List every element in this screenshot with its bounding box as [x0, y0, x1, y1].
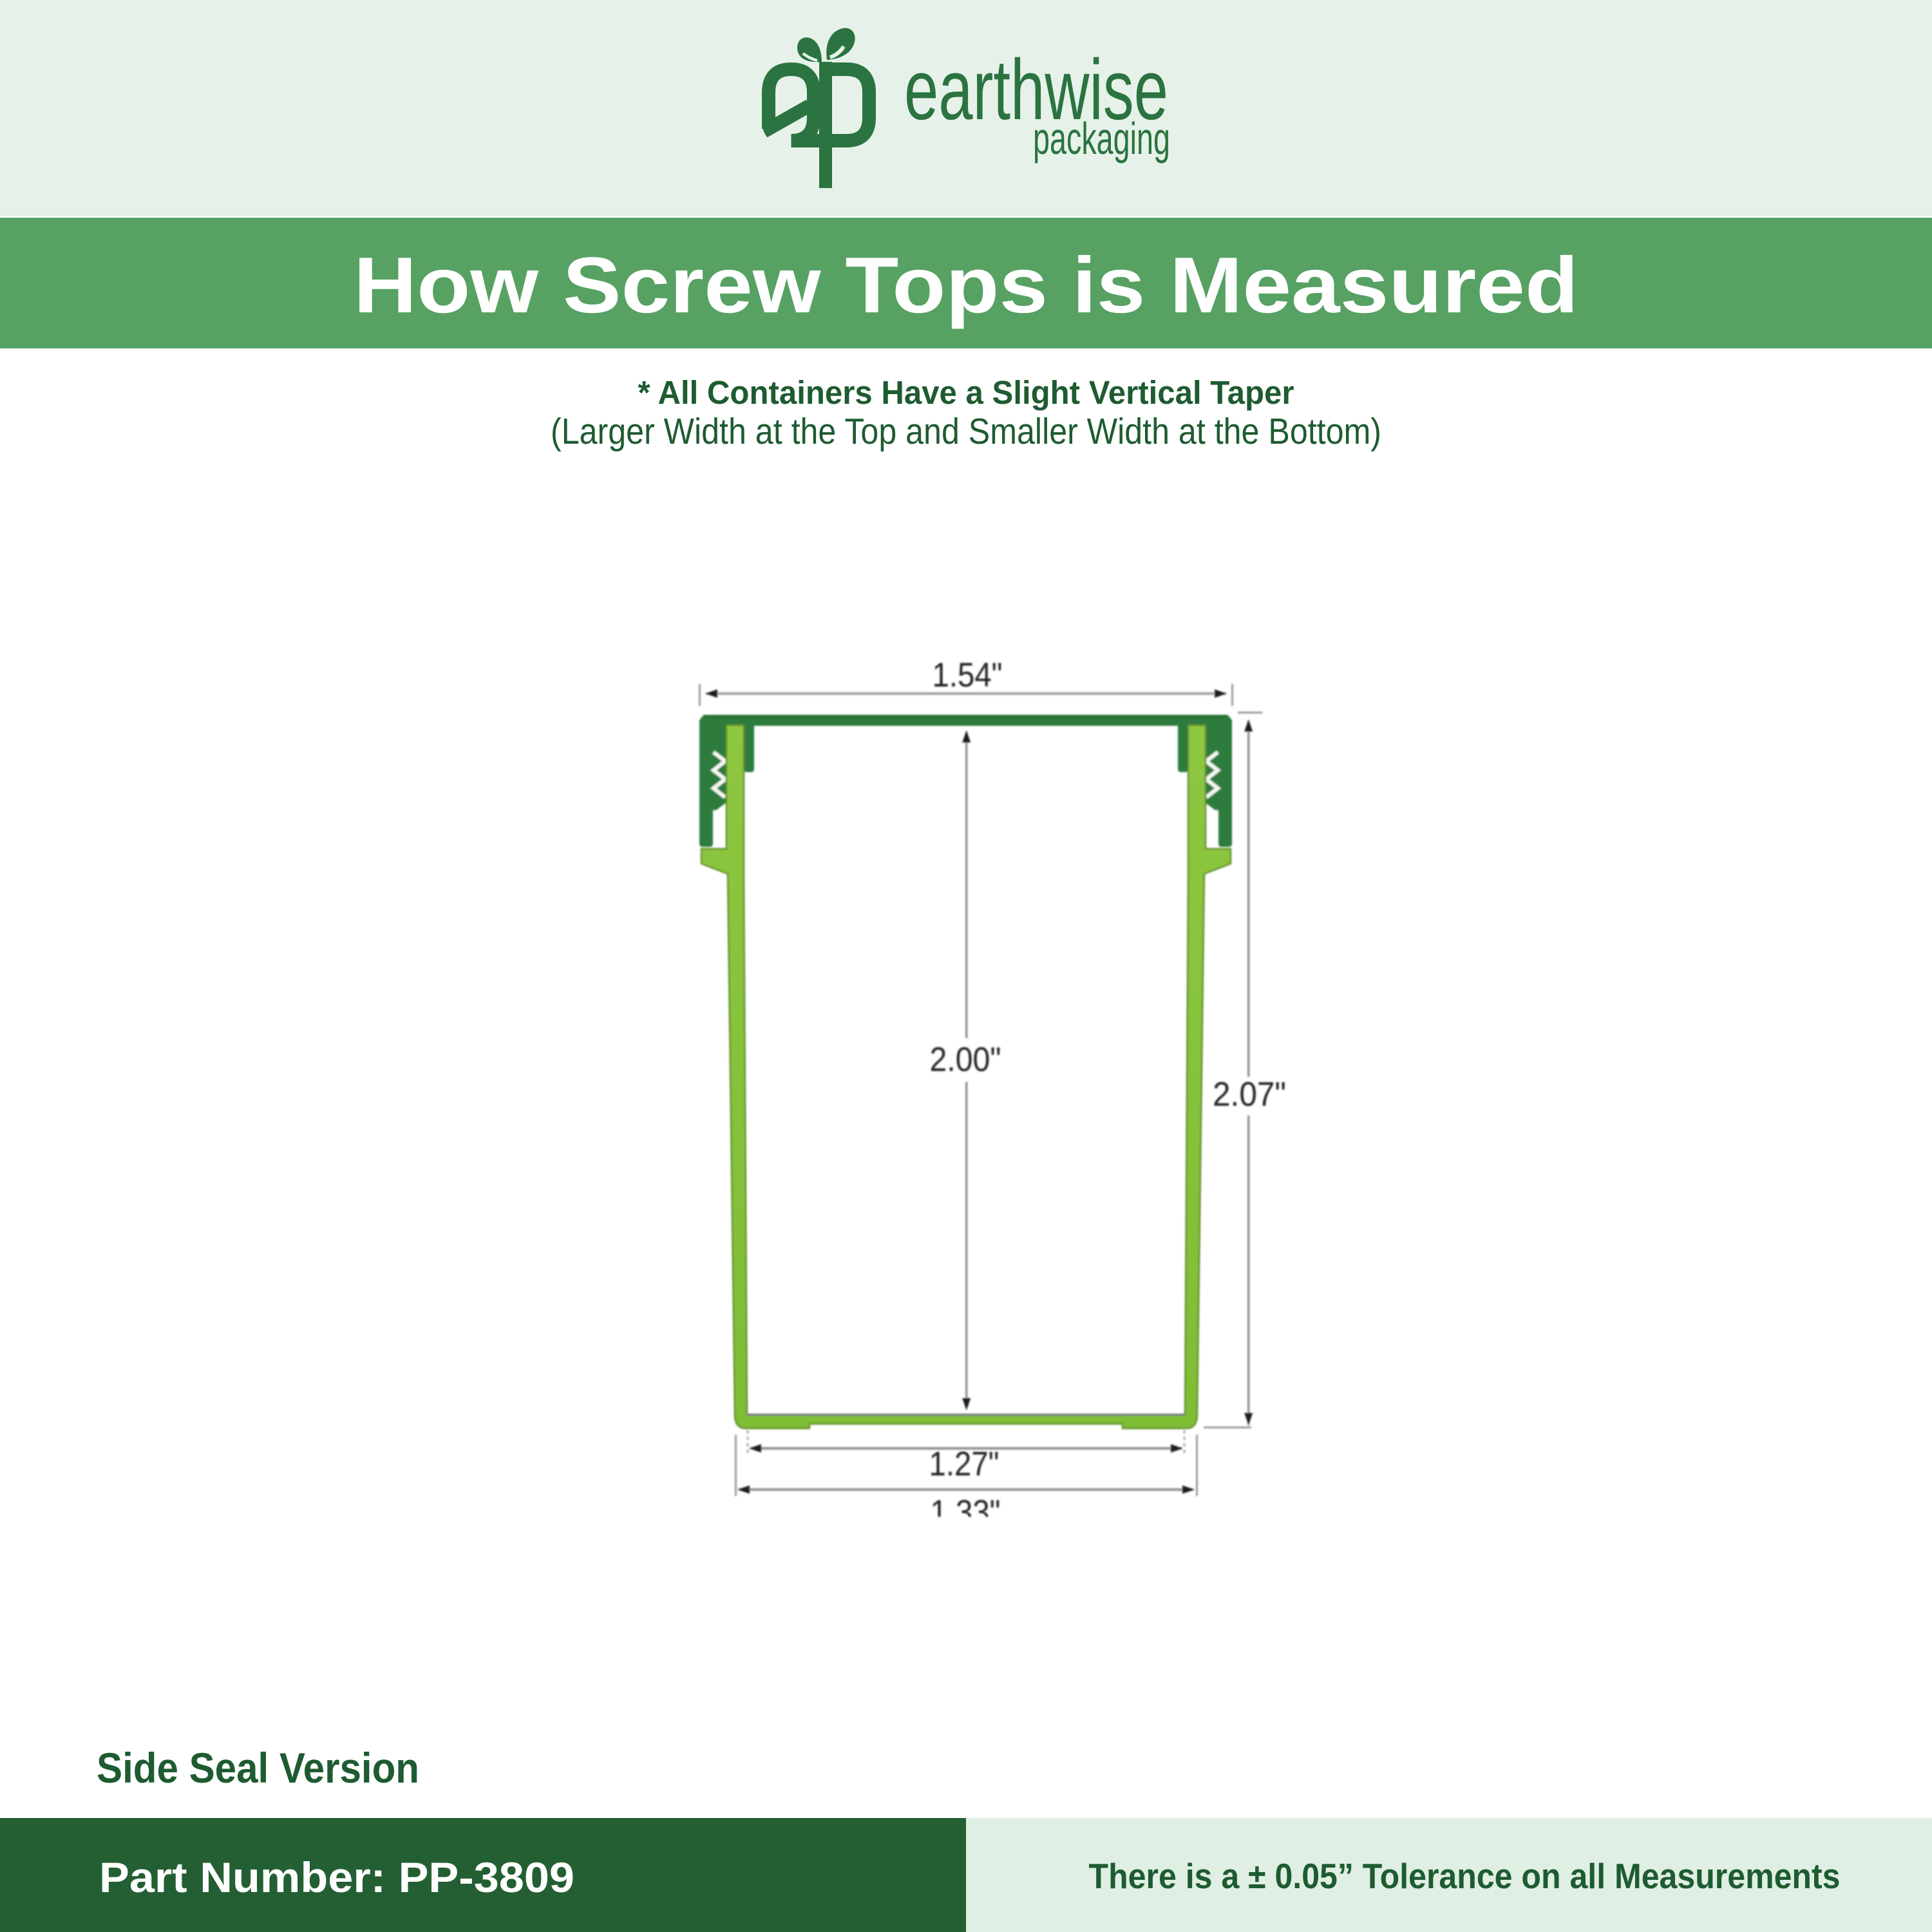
svg-text:1.27": 1.27"	[929, 1445, 999, 1483]
svg-text:1.54": 1.54"	[933, 656, 1003, 694]
svg-text:There is a ± 0.05” Tolerance o: There is a ± 0.05” Tolerance on all Meas…	[1089, 1856, 1841, 1896]
svg-text:Part Number: PP-3809: Part Number: PP-3809	[99, 1853, 574, 1901]
svg-text:2.00": 2.00"	[930, 1041, 1001, 1079]
svg-text:packaging: packaging	[1033, 113, 1170, 164]
svg-text:(Larger Width at the Top and S: (Larger Width at the Top and Smaller Wid…	[551, 411, 1381, 452]
svg-text:Side Seal Version: Side Seal Version	[97, 1744, 419, 1792]
svg-text:* All Containers Have a Slight: * All Containers Have a Slight Vertical …	[638, 374, 1294, 411]
svg-text:How Screw Tops is Measured: How Screw Tops is Measured	[354, 241, 1578, 330]
svg-text:2.07": 2.07"	[1213, 1075, 1286, 1113]
